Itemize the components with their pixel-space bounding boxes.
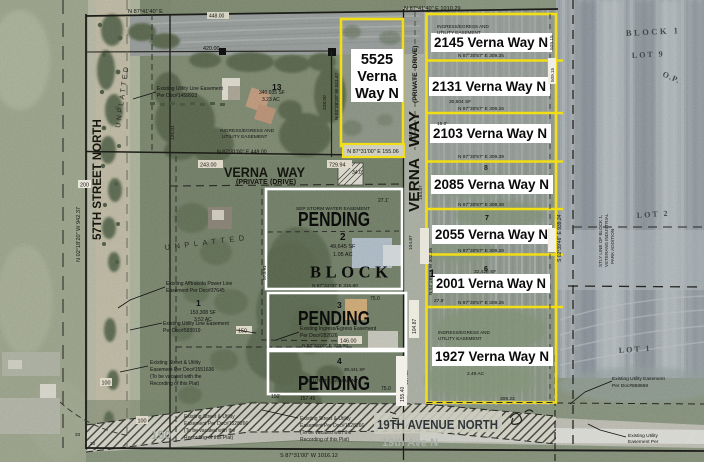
svg-text:Existing Street & Utility: Existing Street & Utility (150, 360, 201, 366)
svg-text:7: 7 (485, 215, 489, 222)
svg-text:Recording of this Plat): Recording of this Plat) (184, 435, 234, 441)
svg-text:N 87°30'57" E 309.38: N 87°30'57" E 309.38 (458, 202, 504, 208)
svg-text:UTILITY EASEMENT: UTILITY EASEMENT (437, 30, 481, 35)
svg-text:Per Doc#593919: Per Doc#593919 (163, 328, 201, 334)
svg-text:5525: 5525 (361, 52, 393, 68)
svg-text:729.94: 729.94 (329, 163, 346, 169)
svg-text:155.40: 155.40 (400, 386, 406, 402)
svg-text:(PRIVATE: (PRIVATE (236, 179, 268, 186)
svg-text:150': 150' (271, 394, 280, 400)
svg-text:INGRESS/EGRESS AND: INGRESS/EGRESS AND (438, 330, 491, 335)
svg-text:N 87°31'00" E 329.90: N 87°31'00" E 329.90 (302, 343, 348, 349)
svg-text:33: 33 (90, 441, 96, 446)
svg-text:(PRIVATE DRIVE): (PRIVATE DRIVE) (412, 45, 419, 103)
svg-text:Per Doc#282026: Per Doc#282026 (300, 333, 338, 339)
svg-text:Way N: Way N (355, 86, 399, 102)
svg-text:19TH AVENUE NORTH: 19TH AVENUE NORTH (377, 418, 498, 432)
svg-text:309.23: 309.23 (500, 396, 515, 402)
svg-text:27.5': 27.5' (434, 298, 444, 304)
svg-text:Existing Utility Easement: Existing Utility Easement (612, 376, 665, 382)
svg-text:S 02°39'46" E 939.24: S 02°39'46" E 939.24 (557, 214, 563, 262)
svg-text:S 87°31'00" W 1016.12: S 87°31'00" W 1016.12 (280, 453, 338, 459)
svg-text:N 87°41'40" E: N 87°41'40" E (128, 9, 163, 15)
svg-text:34.0': 34.0' (352, 170, 363, 176)
svg-text:N 87°31'00" E 316.80: N 87°31'00" E 316.80 (312, 283, 358, 289)
svg-text:75.0: 75.0 (381, 386, 391, 392)
svg-text:SEP STORM WATER EASEMENT: SEP STORM WATER EASEMENT (296, 206, 370, 212)
svg-text:2145 Verna Way N: 2145 Verna Way N (434, 34, 548, 50)
svg-text:LOT 9: LOT 9 (632, 49, 665, 60)
svg-text:104.87: 104.87 (412, 318, 418, 334)
svg-text:3.23 AC: 3.23 AC (262, 97, 280, 103)
svg-text:Easement Per: Easement Per (628, 439, 659, 445)
svg-text:57TH STREET NORTH: 57TH STREET NORTH (92, 119, 104, 240)
svg-text:1927 Verna Way N: 1927 Verna Way N (435, 348, 549, 364)
svg-text:448.00: 448.00 (209, 14, 225, 20)
svg-text:Existing Afftrakota Power Line: Existing Afftrakota Power Line (166, 281, 233, 287)
svg-text:30,441 SF: 30,441 SF (344, 367, 365, 372)
svg-text:8: 8 (484, 165, 488, 172)
svg-text:2103 Verna Way N: 2103 Verna Way N (433, 125, 547, 141)
svg-text:STLY LINE OF BLOCK 1,: STLY LINE OF BLOCK 1, (598, 215, 603, 267)
svg-text:N 02°18'20" W 942.37: N 02°18'20" W 942.37 (76, 207, 82, 262)
svg-text:(To be vacated with the: (To be vacated with the (184, 428, 236, 434)
svg-text:340,035 SF: 340,035 SF (259, 90, 285, 96)
svg-text:Verna: Verna (357, 69, 397, 85)
svg-text:N 87°30'57" E 309.26: N 87°30'57" E 309.26 (458, 106, 504, 112)
svg-text:N 87°30'57" E 309.39: N 87°30'57" E 309.39 (458, 154, 504, 160)
svg-text:2: 2 (340, 232, 346, 243)
svg-text:2.49 AC: 2.49 AC (467, 371, 485, 377)
svg-text:Existing Street & Utility: Existing Street & Utility (300, 416, 351, 422)
svg-text:VERNA: VERNA (406, 158, 423, 212)
svg-text:420.00: 420.00 (203, 46, 220, 52)
svg-text:INGRESS/EGRESS AND: INGRESS/EGRESS AND (437, 24, 490, 29)
svg-text:BLOCK: BLOCK (310, 263, 396, 282)
svg-text:2001 Verna Way N: 2001 Verna Way N (436, 275, 546, 291)
svg-text:190: 190 (151, 428, 171, 442)
svg-text:100: 100 (102, 381, 111, 387)
svg-text:243.00: 243.00 (200, 163, 217, 169)
svg-text:Easement Per Doc#1528266: Easement Per Doc#1528266 (184, 421, 248, 427)
svg-text:30,604 SF: 30,604 SF (449, 99, 471, 105)
svg-text:4: 4 (337, 356, 342, 366)
svg-text:Recording of this Plat): Recording of this Plat) (150, 381, 200, 387)
svg-text:164.87: 164.87 (418, 185, 424, 200)
svg-text:WAY: WAY (277, 165, 305, 180)
svg-text:N 02°28'20" W 341.47: N 02°28'20" W 341.47 (334, 72, 340, 120)
svg-text:(DRIVE): (DRIVE) (270, 179, 296, 186)
svg-text:2131 Verna Way N: 2131 Verna Way N (432, 78, 546, 94)
svg-text:75.0: 75.0 (370, 296, 380, 302)
svg-text:Existing Utility Line Easement: Existing Utility Line Easement (163, 321, 229, 327)
svg-text:Easement Per Doc#37645: Easement Per Doc#37645 (166, 288, 225, 294)
svg-text:Easement Per Doc#1551636: Easement Per Doc#1551636 (150, 367, 214, 373)
svg-text:30' UTILITY EASEMENT: 30' UTILITY EASEMENT (305, 378, 358, 384)
svg-text:153,308 SF: 153,308 SF (190, 310, 216, 316)
svg-text:PENDING: PENDING (298, 209, 370, 231)
svg-text:UTILITY EASEMENT: UTILITY EASEMENT (222, 134, 268, 140)
svg-text:49,645 SF: 49,645 SF (330, 244, 356, 250)
svg-text:157.45: 157.45 (300, 396, 316, 402)
svg-text:PENDING: PENDING (298, 373, 370, 395)
svg-text:509.15: 509.15 (550, 68, 555, 82)
svg-text:Existing Utility: Existing Utility (628, 433, 658, 439)
svg-text:509.15: 509.15 (549, 35, 555, 50)
svg-text:N 87°30'57" E 309.28: N 87°30'57" E 309.28 (458, 248, 504, 254)
svg-text:N 87°30'57" E 309.35: N 87°30'57" E 309.35 (458, 53, 504, 59)
svg-text:VETERANS INDUSTRIAL: VETERANS INDUSTRIAL (604, 213, 609, 267)
svg-text:INGRESS/EGRESS AND: INGRESS/EGRESS AND (220, 128, 275, 134)
svg-text:(To be vacated with the: (To be vacated with the (150, 374, 202, 380)
svg-text:Recording of this Plat): Recording of this Plat) (300, 437, 350, 443)
svg-text:125.01: 125.01 (170, 125, 176, 140)
svg-text:N 87°31'00" E 448.00: N 87°31'00" E 448.00 (217, 150, 267, 156)
svg-text:1.05 AC: 1.05 AC (333, 252, 353, 258)
svg-text:Per Doc#1459923: Per Doc#1459923 (157, 93, 198, 99)
svg-text:573.91: 573.91 (262, 265, 268, 280)
svg-text:Per Doc#858658: Per Doc#858658 (612, 383, 648, 389)
svg-text:UTILITY EASEMENT: UTILITY EASEMENT (438, 336, 482, 341)
svg-text:2055 Verna Way N: 2055 Verna Way N (435, 226, 548, 242)
svg-text:27.1': 27.1' (378, 198, 389, 204)
svg-text:N 87°41'40" E 1010.29: N 87°41'40" E 1010.29 (404, 6, 461, 12)
svg-text:Existing Ingress/Egress Easeme: Existing Ingress/Egress Easement (300, 326, 377, 332)
svg-text:19th Ave N: 19th Ave N (382, 437, 438, 449)
svg-text:PARK ADDITION: PARK ADDITION (610, 229, 615, 264)
svg-text:15.0': 15.0' (437, 121, 447, 127)
svg-text:Existing Utility Line Easement: Existing Utility Line Easement (157, 86, 223, 92)
svg-text:VERNA: VERNA (224, 165, 268, 180)
svg-text:200: 200 (80, 183, 89, 189)
svg-text:100: 100 (138, 419, 147, 425)
svg-text:Easement Per Doc#1528266: Easement Per Doc#1528266 (300, 423, 364, 429)
svg-text:N 87°31'00" E 155.06: N 87°31'00" E 155.06 (347, 149, 399, 155)
svg-text:6: 6 (484, 266, 488, 273)
svg-text:33: 33 (75, 432, 81, 437)
svg-text:228.00: 228.00 (322, 95, 328, 110)
svg-text:2085 Verna Way N: 2085 Verna Way N (434, 176, 549, 192)
svg-text:N 87°30'57" E 309.26: N 87°30'57" E 309.26 (458, 300, 504, 306)
svg-text:1: 1 (196, 298, 201, 308)
svg-text:(To be vacated with the: (To be vacated with the (300, 430, 352, 436)
svg-text:104.87: 104.87 (408, 125, 414, 140)
svg-text:3: 3 (337, 300, 342, 310)
svg-text:104.87: 104.87 (408, 235, 414, 250)
svg-text:Existing Street & Utility: Existing Street & Utility (184, 414, 235, 420)
